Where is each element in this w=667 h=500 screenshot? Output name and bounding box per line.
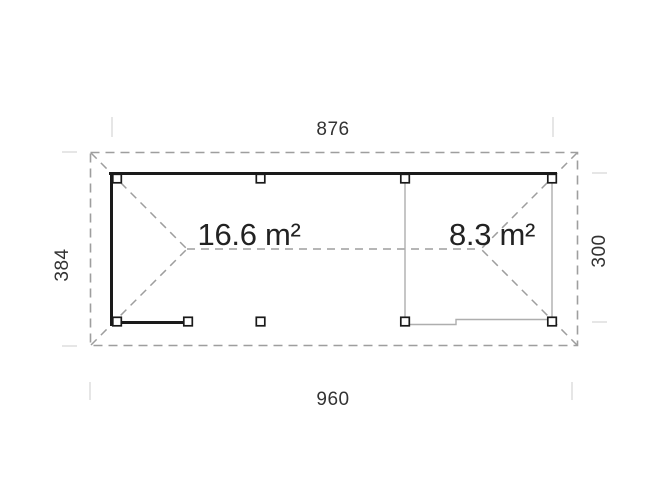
floor-plan-canvas: 876 960 384 300 16.6 m² 8.3 m² [0, 0, 667, 500]
post-bottom-left [113, 317, 122, 326]
floor-plan-drawing [0, 0, 667, 500]
post-bottom-mid-right [401, 317, 410, 326]
hip-line-bottom-left [91, 249, 187, 345]
dimension-top-label: 876 [316, 119, 349, 141]
dimension-bottom-label: 960 [316, 389, 349, 411]
dimension-right-label: 300 [589, 234, 611, 267]
post-top-mid-right [401, 174, 410, 183]
post-bottom-wall-end [184, 317, 193, 326]
dimension-extension-ticks [62, 117, 607, 400]
hip-line-bottom-right [481, 249, 577, 345]
glass-room-area-label: 8.3 m² [449, 217, 535, 253]
glass-wall-bottom [405, 320, 552, 325]
post-bottom-mid-left [256, 317, 265, 326]
carport-area-label: 16.6 m² [198, 217, 301, 253]
post-top-right [548, 174, 557, 183]
post-bottom-right [548, 317, 557, 326]
dimension-left-label: 384 [52, 248, 74, 281]
post-top-left [113, 174, 122, 183]
hip-line-top-left [91, 153, 187, 249]
post-top-mid-left [256, 174, 265, 183]
